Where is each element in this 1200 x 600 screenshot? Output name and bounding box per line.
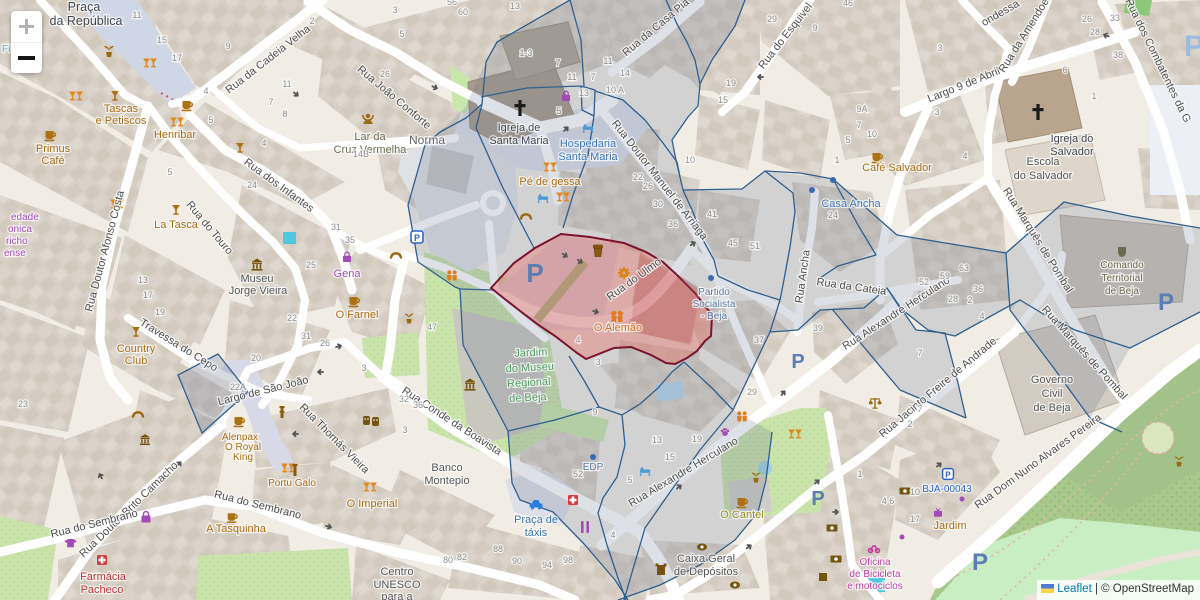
- svg-text:P: P: [945, 471, 951, 480]
- svg-text:7: 7: [856, 120, 861, 130]
- svg-text:Partido: Partido: [698, 287, 730, 298]
- svg-text:Café: Café: [41, 155, 64, 167]
- svg-text:24: 24: [828, 210, 838, 220]
- svg-text:P: P: [414, 233, 420, 243]
- svg-text:Country: Country: [117, 343, 156, 355]
- svg-text:P: P: [811, 488, 824, 510]
- svg-text:4: 4: [979, 311, 984, 321]
- svg-text:4: 4: [610, 530, 615, 540]
- svg-text:Escola: Escola: [1026, 156, 1060, 168]
- svg-text:A Tasquinha: A Tasquinha: [206, 523, 267, 535]
- svg-text:5: 5: [556, 106, 561, 116]
- svg-text:35: 35: [345, 235, 355, 245]
- svg-text:26: 26: [320, 338, 330, 348]
- svg-text:19: 19: [155, 307, 165, 317]
- svg-text:7: 7: [555, 58, 560, 68]
- svg-text:Henribar: Henribar: [154, 129, 197, 141]
- svg-text:Cruz Vermelha: Cruz Vermelha: [334, 144, 408, 156]
- svg-text:26: 26: [1082, 14, 1092, 24]
- svg-text:3: 3: [934, 107, 939, 117]
- svg-text:11: 11: [567, 72, 576, 82]
- svg-text:O Cantel: O Cantel: [720, 509, 763, 521]
- svg-text:O Farnel: O Farnel: [336, 309, 379, 321]
- svg-text:33: 33: [1110, 13, 1120, 23]
- svg-text:98: 98: [563, 555, 573, 565]
- svg-text:20: 20: [251, 353, 261, 363]
- svg-text:onica: onica: [8, 224, 32, 235]
- svg-text:de Beja: de Beja: [1033, 402, 1071, 414]
- svg-text:Civil: Civil: [1042, 388, 1063, 400]
- svg-text:P: P: [791, 351, 804, 373]
- svg-text:9: 9: [812, 23, 817, 33]
- svg-text:13: 13: [579, 88, 589, 98]
- svg-text:38: 38: [1113, 50, 1123, 60]
- svg-text:22: 22: [633, 172, 643, 182]
- svg-text:EDP: EDP: [583, 462, 604, 473]
- svg-text:de Beja: de Beja: [509, 391, 548, 405]
- svg-text:1: 1: [834, 155, 839, 165]
- svg-text:Pé de gessa: Pé de gessa: [519, 176, 581, 188]
- svg-text:e Petiscos: e Petiscos: [96, 115, 147, 127]
- svg-text:- Beja: - Beja: [701, 311, 728, 322]
- svg-text:Primus: Primus: [36, 143, 71, 155]
- svg-text:14: 14: [620, 68, 630, 78]
- svg-text:52: 52: [573, 469, 583, 479]
- svg-text:Praça: Praça: [68, 0, 101, 14]
- svg-text:5: 5: [399, 29, 404, 39]
- svg-text:23: 23: [18, 399, 28, 409]
- svg-text:7: 7: [917, 404, 922, 414]
- svg-text:Oficina: Oficina: [859, 557, 891, 568]
- svg-text:King: King: [233, 452, 253, 463]
- svg-text:4: 4: [203, 86, 208, 96]
- svg-text:17: 17: [910, 514, 920, 524]
- svg-text:3: 3: [402, 425, 407, 435]
- svg-text:Montepio: Montepio: [424, 475, 469, 487]
- svg-text:P: P: [1184, 30, 1200, 63]
- svg-text:2: 2: [309, 16, 314, 26]
- svg-text:3: 3: [392, 5, 397, 15]
- svg-text:39: 39: [813, 323, 823, 333]
- svg-text:do Salvador: do Salvador: [1014, 170, 1073, 182]
- svg-text:46: 46: [843, 0, 853, 8]
- svg-text:Casa Ancha: Casa Ancha: [821, 198, 881, 210]
- svg-text:Comando: Comando: [1100, 260, 1144, 271]
- svg-text:de Bicicleta: de Bicicleta: [849, 569, 901, 580]
- svg-text:Santa Maria: Santa Maria: [558, 151, 618, 163]
- svg-text:47: 47: [427, 322, 437, 332]
- svg-text:de Beja: de Beja: [1105, 286, 1139, 297]
- svg-text:da República: da República: [50, 14, 123, 28]
- svg-text:edade: edade: [11, 212, 39, 223]
- svg-text:29: 29: [767, 14, 777, 24]
- svg-text:e motociclos: e motociclos: [847, 581, 903, 592]
- svg-text:94: 94: [542, 560, 552, 570]
- svg-text:Gena: Gena: [334, 268, 362, 280]
- svg-text:15: 15: [718, 95, 728, 105]
- svg-text:4: 4: [261, 138, 266, 148]
- svg-text:Hospedaria: Hospedaria: [560, 138, 617, 150]
- svg-text:Igreja do: Igreja do: [1051, 133, 1094, 145]
- svg-text:La Tasca: La Tasca: [154, 219, 199, 231]
- svg-text:26: 26: [643, 181, 653, 191]
- svg-text:4 6: 4 6: [882, 496, 895, 506]
- svg-text:de Depósitos: de Depósitos: [674, 566, 739, 578]
- svg-text:10: 10: [685, 155, 695, 165]
- svg-text:13: 13: [138, 275, 148, 285]
- svg-text:60: 60: [458, 7, 468, 17]
- svg-text:36: 36: [413, 400, 423, 410]
- svg-text:O Imperial: O Imperial: [347, 498, 398, 510]
- svg-text:táxis: táxis: [525, 527, 548, 539]
- svg-text:28: 28: [948, 294, 958, 304]
- svg-text:32: 32: [399, 394, 409, 404]
- svg-text:Santa Maria: Santa Maria: [489, 135, 549, 147]
- svg-text:13: 13: [652, 435, 662, 445]
- svg-text:90: 90: [512, 556, 522, 566]
- svg-text:Socialista: Socialista: [693, 299, 736, 310]
- svg-text:Pacheco: Pacheco: [81, 584, 124, 596]
- svg-text:Portu Galo: Portu Galo: [268, 478, 316, 489]
- svg-text:1: 1: [857, 469, 862, 479]
- svg-text:7: 7: [590, 72, 595, 82]
- svg-text:9: 9: [592, 407, 597, 417]
- svg-text:Governo: Governo: [1031, 374, 1073, 386]
- svg-text:richo: richo: [6, 236, 28, 247]
- svg-text:P: P: [972, 549, 988, 576]
- svg-text:45: 45: [728, 238, 738, 248]
- svg-text:para a: para a: [381, 591, 413, 600]
- svg-text:Caixa Geral: Caixa Geral: [677, 553, 735, 565]
- svg-text:Igreja de: Igreja de: [498, 122, 541, 134]
- svg-text:Centro: Centro: [380, 566, 413, 578]
- svg-text:Museu: Museu: [240, 273, 273, 285]
- svg-text:9A: 9A: [856, 104, 867, 114]
- svg-text:Club: Club: [125, 355, 148, 367]
- svg-text:30: 30: [653, 199, 663, 209]
- svg-text:Lar da: Lar da: [354, 131, 386, 143]
- svg-text:10 A: 10 A: [606, 85, 624, 95]
- svg-text:7: 7: [268, 97, 273, 107]
- svg-text:31: 31: [331, 222, 341, 232]
- svg-text:O Alemão: O Alemão: [594, 322, 642, 334]
- svg-text:Regional: Regional: [507, 376, 551, 390]
- svg-text:14B: 14B: [353, 149, 369, 159]
- svg-text:17: 17: [143, 290, 153, 300]
- svg-text:Jardim: Jardim: [933, 520, 966, 532]
- svg-text:UNESCO: UNESCO: [373, 579, 421, 591]
- svg-text:Territorial: Territorial: [1101, 273, 1142, 284]
- svg-text:15: 15: [157, 35, 167, 45]
- svg-text:Jardim: Jardim: [514, 346, 548, 360]
- svg-text:10: 10: [910, 487, 920, 497]
- svg-text:28: 28: [1090, 27, 1100, 37]
- svg-text:3: 3: [361, 363, 366, 373]
- svg-text:Café Salvador: Café Salvador: [862, 162, 932, 174]
- svg-text:63: 63: [959, 263, 969, 273]
- svg-text:5: 5: [627, 475, 632, 485]
- svg-text:3: 3: [595, 357, 600, 367]
- svg-text:7: 7: [917, 348, 922, 358]
- svg-text:29: 29: [747, 387, 757, 397]
- svg-text:52: 52: [919, 277, 929, 287]
- svg-text:31: 31: [301, 331, 311, 341]
- svg-text:19: 19: [726, 78, 736, 88]
- svg-text:P: P: [1158, 289, 1174, 316]
- svg-text:80: 80: [443, 555, 453, 565]
- svg-text:5: 5: [208, 115, 213, 125]
- svg-text:do Museu: do Museu: [505, 361, 554, 376]
- svg-text:Norma: Norma: [409, 133, 445, 147]
- svg-text:4: 4: [962, 151, 967, 161]
- svg-text:56: 56: [447, 0, 457, 7]
- svg-text:82: 82: [457, 552, 467, 562]
- svg-text:1: 1: [1091, 91, 1096, 101]
- svg-text:ense: ense: [4, 248, 26, 259]
- svg-text:25: 25: [306, 260, 316, 270]
- svg-text:24: 24: [247, 180, 257, 190]
- svg-text:4: 4: [575, 335, 580, 345]
- svg-text:88: 88: [493, 544, 503, 554]
- svg-text:2: 2: [967, 295, 972, 305]
- svg-text:37: 37: [754, 335, 764, 345]
- svg-text:1-3: 1-3: [519, 48, 532, 58]
- svg-text:26: 26: [380, 69, 390, 79]
- svg-text:2: 2: [907, 419, 912, 429]
- svg-text:11: 11: [282, 79, 291, 89]
- svg-text:8: 8: [282, 109, 287, 119]
- svg-text:P: P: [526, 258, 543, 288]
- svg-text:5: 5: [167, 167, 172, 177]
- svg-text:22A: 22A: [230, 382, 246, 392]
- svg-text:10: 10: [867, 129, 877, 139]
- svg-text:59: 59: [940, 271, 950, 281]
- svg-text:Tascas: Tascas: [104, 103, 139, 115]
- svg-text:3: 3: [937, 43, 942, 53]
- svg-text:19: 19: [692, 434, 702, 444]
- svg-text:15: 15: [665, 452, 675, 462]
- svg-text:36: 36: [668, 219, 678, 229]
- svg-text:36: 36: [973, 284, 983, 294]
- svg-text:41: 41: [707, 209, 717, 219]
- svg-text:Praça de: Praça de: [514, 514, 558, 526]
- svg-text:13: 13: [510, 1, 520, 11]
- svg-text:11: 11: [603, 56, 612, 66]
- svg-text:22: 22: [287, 313, 297, 323]
- svg-text:Fi: Fi: [2, 44, 10, 55]
- svg-text:Jorge Vieira: Jorge Vieira: [229, 285, 288, 297]
- svg-text:6: 6: [1062, 65, 1067, 75]
- svg-text:Banco: Banco: [431, 462, 462, 474]
- svg-text:17: 17: [172, 53, 182, 63]
- svg-text:11: 11: [132, 10, 141, 20]
- svg-text:9: 9: [225, 41, 230, 51]
- svg-text:5: 5: [845, 135, 850, 145]
- svg-text:51: 51: [750, 241, 760, 251]
- svg-text:BJA-00043: BJA-00043: [922, 484, 972, 495]
- svg-text:Farmácia: Farmácia: [80, 571, 127, 583]
